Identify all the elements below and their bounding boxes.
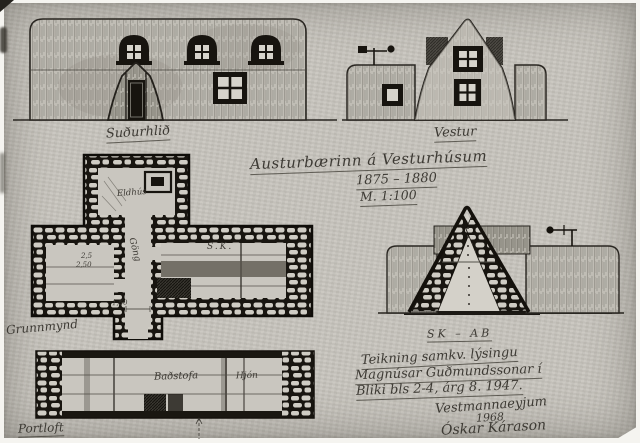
weather-vane-icon [358, 45, 395, 65]
label-badstofa: Baðstofa [154, 371, 198, 383]
stair-block [144, 394, 166, 411]
stone-end-wall [282, 351, 314, 418]
caption-loft-plan: Portloft [18, 421, 64, 438]
right-turf-bank [526, 246, 619, 313]
south-elevation-drawing [10, 8, 340, 132]
weather-vane-icon [546, 225, 577, 246]
left-room [46, 245, 114, 301]
stone-end-wall [36, 351, 62, 418]
ground-plan-drawing [22, 151, 322, 343]
section-drawing [376, 196, 628, 328]
passage [125, 211, 151, 327]
label-kitchen: Eldhús [117, 188, 147, 199]
bed-platform [161, 261, 286, 277]
dimension-label: 2,50 [76, 262, 92, 269]
label-main-room: S.K. [207, 243, 233, 252]
caption-section: SK – AB [427, 327, 493, 342]
attribution-signature: Óskar Kárason [441, 418, 547, 437]
gable-upper-window [453, 46, 483, 72]
gable-lower-window [454, 79, 481, 106]
label-hjon: Hjón [236, 372, 258, 382]
edge-smudge [0, 27, 7, 53]
paper: Suðurhlið Vestur Austur [4, 3, 636, 438]
door-opening [151, 247, 161, 260]
stair-block [157, 278, 191, 298]
west-elevation-drawing [340, 8, 572, 132]
caption-west-elevation: Vestur [434, 125, 477, 142]
square-window [213, 72, 247, 104]
dimension-label: 2,5 [81, 253, 92, 260]
wing-window [382, 84, 403, 106]
photo-frame: Suðurhlið Vestur Austur [0, 0, 640, 443]
right-wing [515, 65, 546, 120]
caption-south-elevation: Suðurhlið [106, 124, 171, 143]
dimension-label: 1,50 [112, 300, 128, 308]
door-opening [114, 279, 125, 292]
loft-plan-drawing [26, 349, 326, 443]
edge-smudge [0, 153, 5, 193]
left-wing [347, 65, 415, 120]
